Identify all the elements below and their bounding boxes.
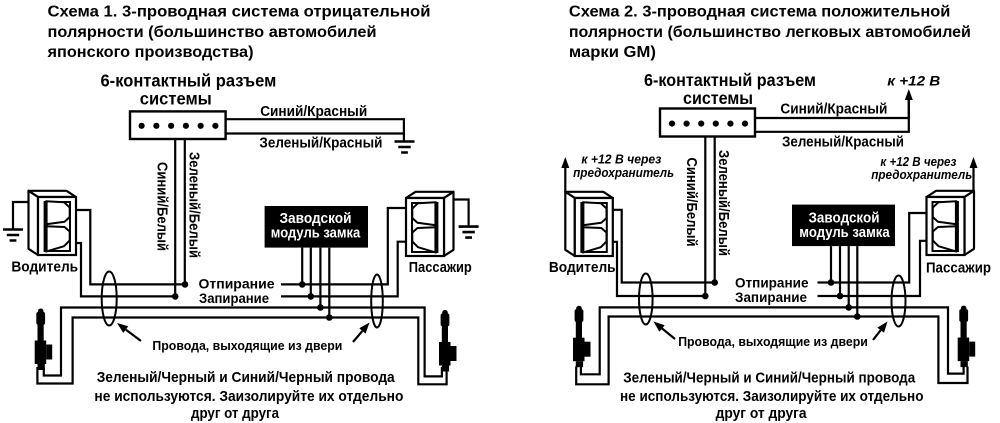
svg-text:Запирание: Запирание bbox=[199, 290, 269, 306]
svg-text:японского производства): японского производства) bbox=[46, 44, 253, 61]
svg-text:Водитель: Водитель bbox=[549, 259, 616, 276]
svg-text:Отпирание: Отпирание bbox=[199, 275, 275, 291]
svg-text:полярности (большинство автомо: полярности (большинство автомобилей bbox=[48, 24, 377, 41]
svg-text:Зеленый/Белый: Зеленый/Белый bbox=[186, 152, 202, 258]
svg-text:Зеленый/Черный и Синий/Черный: Зеленый/Черный и Синий/Черный провода bbox=[623, 369, 916, 386]
svg-text:Зеленый/Красный: Зеленый/Красный bbox=[259, 135, 382, 151]
svg-text:марки GM): марки GM) bbox=[569, 44, 656, 61]
svg-text:полярности (большинство легков: полярности (большинство легковых автомоб… bbox=[569, 24, 971, 41]
svg-text:не используются. Заизолируйте: не используются. Заизолируйте их отдельн… bbox=[94, 388, 403, 405]
svg-text:друг от друга: друг от друга bbox=[191, 405, 280, 422]
svg-text:Синий/Белый: Синий/Белый bbox=[683, 158, 699, 247]
svg-text:Синий/Красный: Синий/Красный bbox=[260, 104, 367, 120]
svg-text:предохранитель: предохранитель bbox=[871, 167, 972, 182]
svg-text:Провода, выходящие из двери: Провода, выходящие из двери bbox=[678, 335, 868, 349]
svg-text:Водитель: Водитель bbox=[11, 259, 78, 276]
svg-text:Синий/Красный: Синий/Красный bbox=[780, 102, 887, 118]
svg-text:предохранитель: предохранитель bbox=[573, 165, 674, 180]
svg-text:Зеленый/Белый: Зеленый/Белый bbox=[715, 150, 731, 256]
svg-text:Пассажир: Пассажир bbox=[409, 259, 472, 276]
svg-text:системы: системы bbox=[683, 88, 753, 108]
svg-text:не используются. Заизолируйте: не используются. Заизолируйте их отдельн… bbox=[620, 388, 924, 405]
svg-text:Схема 1. 3-проводная система о: Схема 1. 3-проводная система отрицательн… bbox=[48, 4, 431, 21]
svg-text:модуль замка: модуль замка bbox=[271, 226, 361, 242]
svg-text:к +12 В: к +12 В bbox=[887, 74, 940, 89]
svg-text:Зеленый/Черный и Синий/Черный: Зеленый/Черный и Синий/Черный провода bbox=[97, 369, 396, 386]
svg-text:Зеленый/Красный: Зеленый/Красный bbox=[782, 135, 904, 151]
svg-text:Пассажир: Пассажир bbox=[926, 260, 991, 277]
svg-text:Провода, выходящие из двери: Провода, выходящие из двери bbox=[152, 339, 342, 353]
svg-text:Запирание: Запирание bbox=[735, 289, 807, 305]
svg-text:Схема 2. 3-проводная система п: Схема 2. 3-проводная система положительн… bbox=[569, 4, 951, 21]
svg-text:системы: системы bbox=[140, 88, 212, 108]
svg-text:Синий/Белый: Синий/Белый bbox=[154, 162, 170, 251]
svg-text:друг от друга: друг от друга bbox=[716, 405, 808, 422]
svg-text:модуль замка: модуль замка bbox=[799, 225, 890, 241]
